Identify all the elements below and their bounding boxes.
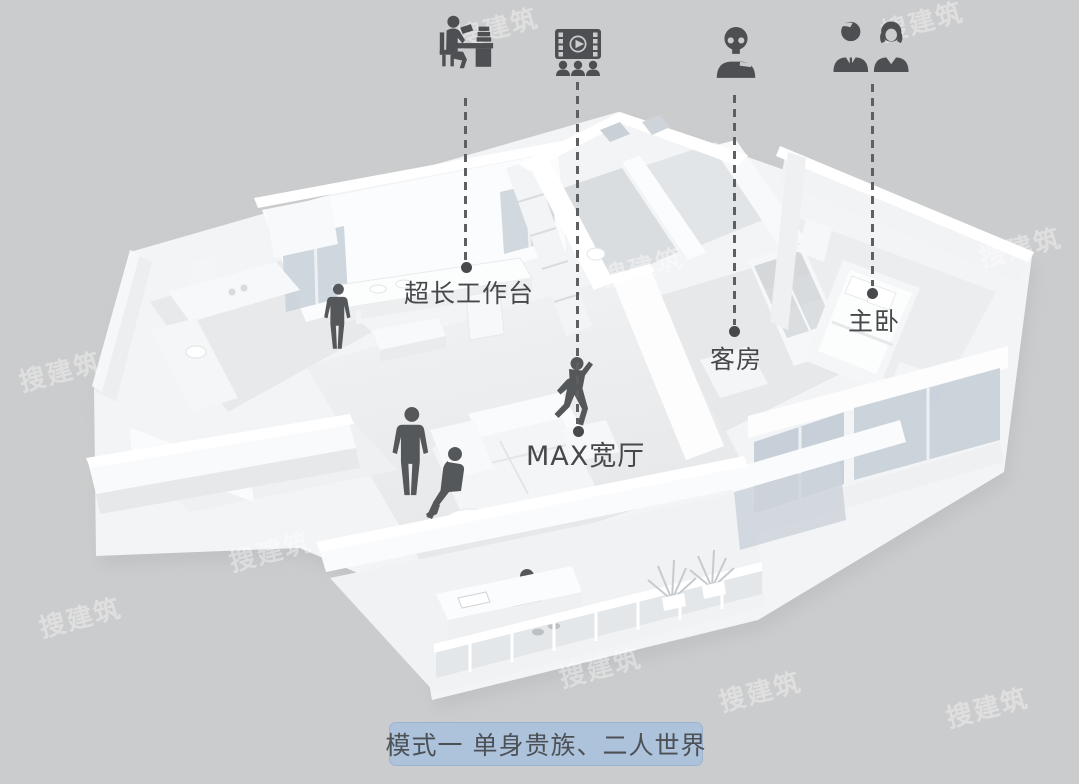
poster-canvas: 搜建筑 搜建筑 搜建筑 搜建筑 搜建筑 搜建筑 搜建筑 搜建筑 搜建筑 搜建筑 … [0,0,1079,784]
apartment-3d-model [0,0,1079,784]
leader-line-worktable [464,98,467,262]
mode-caption-badge: 模式一 单身贵族、二人世界 [389,722,703,766]
leader-line-guest-room [733,95,736,325]
label-guest-room: 客房 [710,340,762,376]
kitchen-sink [186,346,206,358]
mode-caption-text: 模式一 单身贵族、二人世界 [386,726,707,762]
couple-icon [832,20,910,72]
home-theater-icon [554,28,602,76]
label-max-hall: MAX宽厅 [526,434,645,473]
label-master-bedroom: 主卧 [848,302,900,338]
toilet [587,248,605,260]
leader-dot-master-bedroom [867,288,878,299]
reading-desk-icon [434,14,496,76]
leader-line-max-hall [576,82,579,424]
single-person-icon [711,24,761,78]
label-worktable: 超长工作台 [404,274,534,310]
leader-dot-guest-room [729,326,740,337]
leader-dot-worktable [461,262,472,273]
leader-line-master-bedroom [871,84,874,286]
